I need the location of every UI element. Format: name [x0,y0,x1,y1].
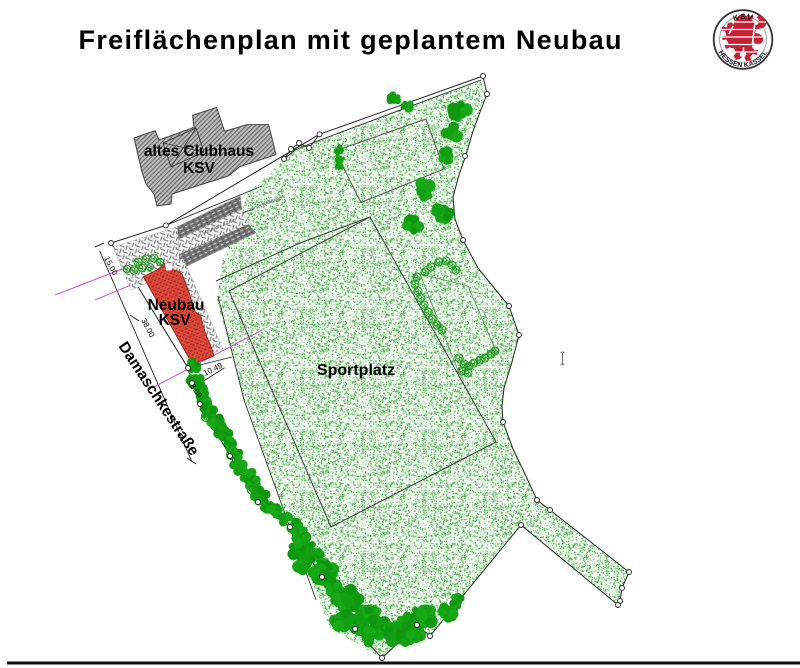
svg-text:KSV: KSV [183,160,216,177]
svg-text:altes Clubhaus: altes Clubhaus [144,143,254,160]
svg-text:Sportplatz: Sportplatz [317,362,395,379]
svg-text:KSV: KSV [159,312,192,329]
